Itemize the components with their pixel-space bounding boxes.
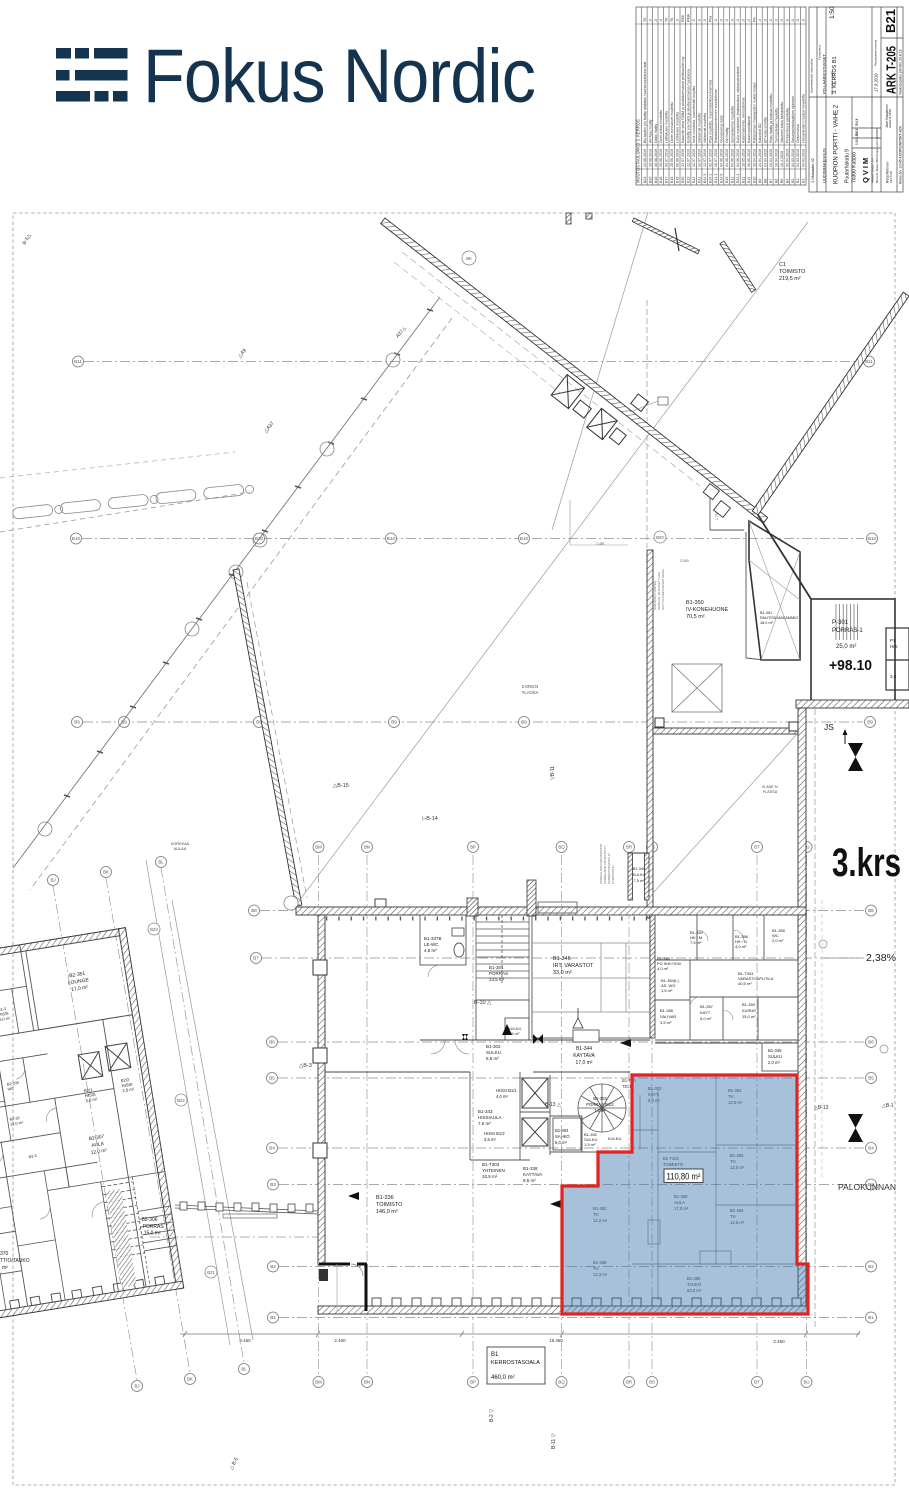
svg-text:3,0: 3,0 (890, 674, 897, 679)
svg-text:04.06.2019: 04.06.2019 (720, 149, 724, 167)
svg-text:KULKU: KULKU (633, 873, 646, 877)
svg-text:B8: B8 (763, 179, 767, 183)
svg-text:Rakstahtuulentervien suunitelm: Rakstahtuulentervien suunitelmas (714, 89, 718, 143)
svg-text:YHTEINEN: YHTEINEN (482, 1168, 505, 1173)
svg-text:B4: B4 (868, 1146, 874, 1151)
svg-text:22.07.2019: 22.07.2019 (687, 149, 691, 167)
svg-text:10.05.2019: 10.05.2019 (741, 149, 745, 167)
svg-text:BL: BL (158, 860, 164, 865)
svg-text:B14.2: B14.2 (709, 174, 713, 183)
svg-text:1.481: 1.481 (596, 542, 605, 546)
svg-text:Esitetty sos hallit ja alustav: Esitetty sos hallit ja alustavannassa mu… (687, 69, 691, 143)
svg-text:30.08.2019: 30.08.2019 (654, 149, 658, 167)
svg-text:UUDISRAKENNUS: UUDISRAKENNUS (822, 148, 827, 183)
svg-text:B18: B18 (659, 177, 663, 183)
svg-text:15,0 m²: 15,0 m² (742, 1014, 756, 1019)
svg-text:JI: JI (741, 19, 745, 22)
svg-text:B6: B6 (774, 179, 778, 183)
svg-text:7,5 m²: 7,5 m² (634, 879, 645, 883)
svg-text:B2: B2 (868, 1264, 874, 1269)
svg-text:30.05.2019: 30.05.2019 (747, 149, 751, 167)
svg-text:24.04.2019: 24.04.2019 (763, 149, 767, 167)
svg-text:70,5 m²: 70,5 m² (686, 614, 705, 620)
svg-text:24.04.2019: 24.04.2019 (758, 149, 762, 167)
svg-text:KULKU: KULKU (608, 1136, 621, 1141)
svg-text:10,5 m²: 10,5 m² (482, 1174, 498, 1179)
svg-text:B1: B1 (270, 1315, 276, 1320)
svg-text:JI: JI (796, 19, 800, 22)
svg-text:SULKU: SULKU (486, 1050, 501, 1055)
svg-text:B5: B5 (780, 179, 784, 183)
svg-text:B22: B22 (177, 1098, 185, 1103)
svg-text:JI: JI (725, 19, 729, 22)
svg-text:B3: B3 (791, 179, 795, 183)
svg-text:YLAOSA: YLAOSA (522, 690, 539, 695)
svg-text:B9: B9 (391, 720, 397, 725)
svg-text:BJ: BJ (50, 878, 55, 883)
svg-text:C1: C1 (779, 262, 786, 268)
svg-text:Piirustuksen sisalto: Piirustuksen sisalto (830, 70, 834, 94)
svg-text:7,0 m²: 7,0 m² (594, 1108, 606, 1113)
svg-text:8.460: 8.460 (239, 1338, 251, 1343)
svg-text:JI: JI (791, 19, 795, 22)
svg-text:Tiedostopolku piirrettu 23.8.1: Tiedostopolku piirrettu 23.8.19 (899, 49, 903, 95)
svg-text:2,0 m²: 2,0 m² (772, 938, 784, 943)
svg-text:B12: B12 (731, 177, 735, 183)
svg-text:12.07.2019: 12.07.2019 (698, 149, 702, 167)
svg-text:B16: B16 (670, 177, 674, 183)
svg-text:23.08.2019: 23.08.2019 (643, 149, 647, 167)
svg-text:Blu taiden ym lisatty alakatot: Blu taiden ym lisatty alakatot, huonemuu… (643, 62, 647, 143)
svg-text:6,0 m²: 6,0 m² (555, 1140, 567, 1145)
svg-text:FLASSA: FLASSA (763, 790, 778, 794)
svg-text:PORRAS B1/2: PORRAS B1/2 (586, 1102, 614, 1107)
svg-text:B11: B11 (741, 177, 745, 183)
svg-text:04.03.2019: 04.03.2019 (791, 149, 795, 167)
svg-text:B9: B9 (74, 720, 80, 725)
svg-text:B1-350: B1-350 (686, 600, 704, 606)
svg-text:B2: B2 (796, 179, 800, 183)
svg-text:B10: B10 (520, 536, 529, 541)
svg-text:JI: JI (698, 19, 702, 22)
svg-text:B9: B9 (521, 720, 527, 725)
svg-text:Lattiakuvio muutettu: Lattiakuvio muutettu (665, 111, 669, 143)
svg-text:▽B-11: ▽B-11 (550, 766, 556, 780)
svg-text:1,5 m²: 1,5 m² (661, 988, 673, 993)
svg-text:3.krs: 3.krs (832, 841, 901, 885)
svg-text:HISSI B1/2: HISSI B1/2 (484, 1131, 505, 1136)
svg-text:TK: TK (643, 17, 647, 22)
svg-text:KAYTTAJAKESTEISIIN SEINA: KAYTTAJAKESTEISIIN SEINA (661, 569, 665, 610)
svg-text:B1-346: B1-346 (553, 956, 571, 962)
svg-text:B7: B7 (769, 179, 773, 183)
svg-text:10.4.2019: 10.4.2019 (780, 151, 784, 167)
svg-text:B-10 △: B-10 △ (474, 1000, 492, 1006)
svg-text:B1-345: B1-345 (768, 1048, 782, 1053)
svg-text:2.400: 2.400 (334, 1338, 346, 1343)
svg-text:Savunpoistoluukkien sijainton: Savunpoistoluukkien sijainton (791, 96, 795, 143)
svg-text:RMJI: RMJI (855, 128, 859, 136)
svg-text:370: 370 (0, 1251, 9, 1257)
svg-text:B1: B1 (802, 179, 806, 183)
svg-text:B12: B12 (692, 177, 696, 183)
svg-text:04.03.2019: 04.03.2019 (802, 149, 806, 167)
svg-text:Valiseinat muutettu: Valiseinat muutettu (703, 113, 707, 143)
svg-text:HISSIAULA: HISSIAULA (478, 1115, 502, 1120)
svg-text:Pka: Pka (709, 16, 713, 22)
svg-text:TK: TK (670, 17, 674, 22)
svg-text:P1: P1 (890, 638, 896, 643)
svg-text:Nimio arv 10045 KUOPIONPORT-A2: Nimio arv 10045 KUOPIONPORT-A24 (899, 126, 903, 184)
svg-text:06.06.2019: 06.06.2019 (676, 149, 680, 167)
svg-text:17,0 m²: 17,0 m² (576, 1060, 593, 1066)
svg-text:B20: B20 (648, 177, 652, 183)
svg-text:B1-359: B1-359 (742, 1002, 756, 1007)
svg-text:BM: BM (315, 845, 322, 850)
svg-text:TOIMISTO: TOIMISTO (376, 1202, 403, 1208)
svg-text:2.000: 2.000 (680, 559, 689, 563)
svg-text:Ovien tunnukset muutettu: Ovien tunnukset muutettu (670, 102, 674, 143)
svg-text:B11: B11 (747, 177, 751, 183)
svg-text:JI: JI (747, 19, 751, 22)
svg-text:B1-302: B1-302 (486, 1044, 501, 1049)
svg-text:Pki: Pki (752, 17, 756, 22)
svg-text:B10: B10 (387, 536, 396, 541)
svg-text:BK: BK (187, 1377, 193, 1382)
svg-text:13,5 m²: 13,5 m² (489, 977, 505, 982)
svg-text:Ilmis muodolla, huonetekstit k: Ilmis muodolla, huonetekstit korjattu (692, 86, 696, 143)
svg-text:IV-KONEHUONE: IV-KONEHUONE (686, 607, 729, 613)
svg-text:Kuilu muutokset, lisatasauksia: Kuilu muutokset, lisatasauksia, rakkasva… (736, 67, 740, 143)
svg-text:3,5 m²: 3,5 m² (660, 1020, 672, 1025)
svg-text:BJ: BJ (134, 1384, 139, 1389)
svg-text:Puutarhakatu 9: Puutarhakatu 9 (845, 149, 851, 183)
svg-text:1 Muistutin 42: 1 Muistutin 42 (810, 157, 815, 183)
svg-text:LE-WC: LE-WC (424, 942, 439, 947)
svg-text:△B-13: △B-13 (814, 1105, 829, 1111)
svg-text:B13: B13 (725, 177, 729, 183)
svg-text:JI: JI (763, 19, 767, 22)
svg-text:Pilari lisatty ja koskua muute: Pilari lisatty ja koskua muutettu (769, 94, 773, 143)
svg-text:B9: B9 (867, 720, 873, 725)
svg-text:BQ: BQ (558, 845, 565, 850)
svg-text:BP: BP (470, 1380, 476, 1385)
svg-text:B20: B20 (656, 535, 664, 540)
svg-text:Pintamitoout paivitetty: Pintamitoout paivitetty (785, 108, 789, 143)
svg-text:Hissasteiden muutos hevytetta: Hissasteiden muutos hevytetta (802, 94, 806, 143)
svg-text:B-2 ▽: B-2 ▽ (489, 1409, 495, 1422)
svg-text:JS: JS (824, 722, 834, 732)
svg-text:B1-357: B1-357 (700, 1004, 714, 1009)
svg-text:VALIVAR: VALIVAR (660, 1014, 676, 1019)
svg-text:JI: JI (648, 19, 652, 22)
svg-text:2,0 m²: 2,0 m² (768, 1060, 780, 1065)
svg-text:B1: B1 (868, 1315, 874, 1320)
svg-text:PO-LAARKISTUKSET: PO-LAARKISTUKSET (822, 54, 827, 94)
svg-text:QVIM: QVIM (861, 156, 870, 183)
svg-text:02.07.2019: 02.07.2019 (709, 149, 713, 167)
svg-text:18,0 m²: 18,0 m² (760, 621, 774, 625)
svg-text:m²: m² (2, 1265, 8, 1271)
svg-text:B1-304: B1-304 (555, 1128, 569, 1133)
svg-text:B21: B21 (643, 177, 647, 183)
svg-text:+98.10: +98.10 (829, 658, 872, 674)
svg-text:B14.1: B14.1 (714, 174, 718, 183)
svg-text:Ovi lisatty: Ovi lisatty (725, 127, 729, 143)
svg-text:B-ASE N: B-ASE N (762, 785, 777, 789)
svg-text:KAYTAVA: KAYTAVA (523, 1172, 542, 1177)
svg-text:7,5 m²: 7,5 m² (690, 940, 702, 945)
svg-text:Tyonumero: Tyonumero (818, 45, 822, 60)
svg-text:Palokunnan maaraysten mukan li: Palokunnan maaraysten mukan lisays (752, 82, 756, 143)
svg-text:BK: BK (466, 256, 472, 261)
svg-text:Kulunvalvonta, ovimuutoksia: Kulunvalvonta, ovimuutoksia (741, 97, 745, 143)
svg-text:BN: BN (364, 1380, 370, 1385)
svg-text:Piirustuksen tunnus: Piirustuksen tunnus (874, 39, 878, 66)
svg-text:BL: BL (241, 1367, 247, 1372)
svg-text:B2-306: B2-306 (141, 1217, 157, 1223)
svg-text:RMJI: RMJI (855, 118, 859, 126)
svg-text:PORRAS: PORRAS (143, 1224, 165, 1230)
svg-text:KUIRAT: KUIRAT (742, 1008, 757, 1013)
svg-text:Suunnitteluala vastuualue: Suunnitteluala vastuualue (810, 58, 814, 93)
svg-text:JI: JI (714, 19, 718, 22)
svg-text:PYROISNSUU: PYROISNSUU (611, 866, 615, 885)
svg-text:HISSI B1/1: HISSI B1/1 (496, 1088, 517, 1093)
svg-text:BK: BK (103, 870, 109, 875)
svg-text:BU: BU (803, 1380, 809, 1385)
svg-text:044-7178: 044-7178 (889, 171, 893, 183)
svg-text:04.06.2019: 04.06.2019 (725, 149, 729, 167)
svg-text:MUUTOSTAULUKKO 3. KERROS: MUUTOSTAULUKKO 3. KERROS (636, 119, 641, 183)
svg-text:B11: B11 (698, 177, 702, 183)
svg-text:B1-343: B1-343 (478, 1109, 493, 1114)
svg-text:B21: B21 (883, 9, 898, 33)
svg-text:B11: B11 (74, 359, 82, 364)
svg-text:JI: JI (774, 19, 778, 22)
svg-text:Nakki lisatty: Nakki lisatty (654, 124, 658, 143)
svg-text:△B-3: △B-3 (299, 1063, 312, 1069)
svg-text:Fokus Nordic: Fokus Nordic (143, 34, 535, 119)
svg-text:146,0 m²: 146,0 m² (376, 1209, 398, 1215)
svg-text:4,0 m²: 4,0 m² (496, 1094, 508, 1099)
svg-text:Kulunvuuluttavat: Kulunvuuluttavat (747, 116, 751, 143)
svg-text:04.03.2019: 04.03.2019 (796, 149, 800, 167)
svg-text:AULAA: AULAA (174, 847, 187, 851)
svg-text:B7: B7 (253, 956, 259, 961)
svg-text:110,80 m²: 110,80 m² (667, 1172, 701, 1182)
svg-text:PORRAS: PORRAS (489, 971, 508, 976)
svg-text:B4: B4 (785, 179, 789, 183)
svg-text:TTIO/TAUKO: TTIO/TAUKO (0, 1258, 30, 1264)
svg-text:B6: B6 (269, 1040, 275, 1045)
svg-text:ARKKITEHDIT OY: ARKKITEHDIT OY (871, 158, 875, 183)
svg-text:7,5 m²: 7,5 m² (478, 1121, 491, 1126)
svg-text:12.07.2019: 12.07.2019 (703, 149, 707, 167)
svg-text:KAYTAVA: KAYTAVA (573, 1053, 595, 1059)
svg-text:PALOKUNNAN: PALOKUNNAN (838, 1182, 896, 1192)
svg-text:KUOPION PORTTI - VAIHE 2: KUOPION PORTTI - VAIHE 2 (834, 104, 840, 184)
svg-text:RMI: RMI (681, 15, 685, 22)
svg-text:23.04.2019: 23.04.2019 (769, 149, 773, 167)
svg-text:30.04.2019: 30.04.2019 (752, 149, 756, 167)
svg-text:28.06.2019: 28.06.2019 (670, 149, 674, 167)
svg-text:15,0 m²: 15,0 m² (144, 1231, 161, 1237)
svg-text:BT: BT (754, 845, 760, 850)
svg-text:B10: B10 (72, 536, 81, 541)
svg-text:B1-344: B1-344 (576, 1046, 592, 1052)
svg-text:Kalustiot SD: Kalustiot SD (758, 123, 762, 143)
svg-text:BT: BT (754, 1380, 760, 1385)
svg-text:4,0 m²: 4,0 m² (735, 944, 747, 949)
svg-text:Seinarakenne muutettu: Seinarakenne muutettu (731, 106, 735, 143)
svg-text:BQ: BQ (558, 1380, 565, 1385)
svg-text:RMA: RMA (687, 13, 691, 22)
svg-text:JI: JI (736, 19, 740, 22)
svg-text:B14.3: B14.3 (703, 174, 707, 183)
svg-text:Ovet siirtoa muutettu: Ovet siirtoa muutettu (659, 110, 663, 143)
svg-text:JI: JI (676, 19, 680, 22)
svg-text:B2: B2 (270, 1264, 276, 1269)
svg-text:PORRAS-1: PORRAS-1 (832, 628, 863, 634)
svg-text:1,5 m²: 1,5 m² (584, 1142, 596, 1147)
svg-text:Ovitunnksia: Ovitunnksia (796, 124, 800, 143)
svg-text:B15: B15 (654, 177, 658, 183)
svg-text:JI: JI (654, 19, 658, 22)
svg-text:JI: JI (758, 19, 762, 22)
svg-text:JI: JI (785, 19, 789, 22)
svg-text:ARK T-205: ARK T-205 (885, 46, 899, 94)
svg-text:28.07.2019: 28.07.2019 (714, 149, 718, 167)
svg-text:B15: B15 (676, 177, 680, 183)
svg-text:▷B-14: ▷B-14 (422, 816, 438, 822)
svg-text:6,0 m²: 6,0 m² (700, 1016, 712, 1021)
svg-text:BR: BR (626, 1380, 632, 1385)
svg-text:3,5 m²: 3,5 m² (484, 1137, 496, 1142)
svg-text:AV-/taso lisatty: AV-/taso lisatty (648, 119, 652, 143)
svg-text:B1-349: B1-349 (633, 867, 645, 871)
svg-text:17.3.2019: 17.3.2019 (874, 73, 879, 92)
svg-text:△B-1: △B-1 (882, 1103, 894, 1109)
svg-text:2,38%: 2,38% (866, 953, 896, 964)
svg-text:B13.1: B13.1 (736, 174, 740, 183)
svg-text:1:50: 1:50 (829, 6, 836, 19)
svg-text:B13: B13 (687, 177, 691, 183)
svg-text:JI: JI (780, 19, 784, 22)
svg-text:BP: BP (470, 845, 476, 850)
svg-text:Pipa muutettu, muunnetuilkoon/: Pipa muutettu, muunnetuilkoon/varmika (709, 80, 713, 143)
svg-text:20.08.2019: 20.08.2019 (648, 149, 652, 167)
svg-text:BN: BN (364, 845, 370, 850)
svg-text:BS: BS (649, 1380, 655, 1385)
svg-text:BR: BR (626, 845, 632, 850)
svg-text:B11: B11 (865, 359, 873, 364)
svg-text:JI: JI (692, 19, 696, 22)
svg-text:P-301: P-301 (832, 620, 849, 626)
svg-text:B1-351: B1-351 (760, 611, 772, 615)
svg-text:B8: B8 (251, 908, 257, 913)
svg-text:JI: JI (720, 19, 724, 22)
svg-text:BM: BM (315, 1380, 322, 1385)
svg-text:B1-301: B1-301 (489, 965, 504, 970)
svg-text:SAHKO: SAHKO (555, 1134, 570, 1139)
svg-text:B-11 ▽: B-11 ▽ (551, 1433, 557, 1449)
svg-text:2.KRS:N: 2.KRS:N (522, 684, 538, 689)
svg-text:KERROSTASOALA: KERROSTASOALA (491, 1360, 540, 1366)
svg-text:TK: TK (665, 17, 669, 22)
svg-text:25,0 m²: 25,0 m² (836, 644, 856, 650)
svg-text:Tunnustelale muutettu: Tunnustelale muutettu (774, 108, 778, 143)
svg-text:RAUTISILMAKAMMIO: RAUTISILMAKAMMIO (760, 616, 798, 620)
svg-text:JI: JI (731, 19, 735, 22)
svg-text:EP-kuilu siirretty: EP-kuilu siirretty (763, 117, 767, 143)
svg-text:HIS: HIS (890, 644, 898, 649)
svg-text:△B-15: △B-15 (333, 783, 349, 789)
svg-text:B1-358: B1-358 (660, 1008, 674, 1013)
svg-text:B5: B5 (269, 1076, 275, 1081)
svg-text:B1-337B: B1-337B (424, 936, 442, 941)
svg-text:16.04.2019: 16.04.2019 (774, 149, 778, 167)
svg-text:B1-336: B1-336 (376, 1195, 394, 1201)
svg-text:SULKU: SULKU (768, 1054, 782, 1059)
svg-text:22.07.2019: 22.07.2019 (681, 149, 685, 167)
svg-text:JI: JI (769, 19, 773, 22)
svg-text:2.450: 2.450 (773, 1339, 785, 1344)
svg-text:70300 Kuopio: 70300 Kuopio (852, 152, 858, 183)
svg-text:TOIMISTO: TOIMISTO (779, 269, 806, 275)
svg-text:460,0 m²: 460,0 m² (491, 1375, 515, 1381)
svg-text:219,5 m²: 219,5 m² (779, 276, 801, 282)
svg-text:B21: B21 (207, 1270, 215, 1275)
svg-text:B6: B6 (868, 1040, 874, 1045)
svg-text:B1-T303: B1-T303 (482, 1162, 500, 1167)
svg-text:B1-303: B1-303 (593, 1096, 607, 1101)
svg-text:IRT. VARASTOT: IRT. VARASTOT (553, 963, 594, 969)
svg-text:03.07.2019: 03.07.2019 (665, 149, 669, 167)
svg-text:B3: B3 (270, 1182, 276, 1187)
svg-text:JI: JI (703, 19, 707, 22)
svg-text:19.360: 19.360 (549, 1338, 563, 1343)
svg-text:30.08.2019: 30.08.2019 (659, 149, 663, 167)
svg-text:Valiseinat muutettu: Valiseinat muutettu (698, 113, 702, 143)
svg-text:B5: B5 (868, 1076, 874, 1081)
svg-text:JI: JI (659, 19, 663, 22)
svg-text:B8: B8 (868, 908, 874, 913)
svg-text:4,0 m²: 4,0 m² (657, 966, 669, 971)
svg-text:33,0 m²: 33,0 m² (553, 970, 572, 976)
svg-text:B17: B17 (665, 177, 669, 183)
svg-text:Lehtikuvio muutettu: Lehtikuvio muutettu (676, 112, 680, 143)
svg-text:B14.0: B14.0 (720, 174, 724, 183)
svg-text:KORKEAA: KORKEAA (171, 842, 190, 846)
svg-text:B30: B30 (681, 177, 685, 183)
svg-text:03.04.2019: 03.04.2019 (785, 149, 789, 167)
svg-text:Minna K. Alava 7000 Kuopio p.0: Minna K. Alava 7000 Kuopio p.017-2614500 (875, 128, 879, 183)
svg-text:KAYT.: KAYT. (700, 1010, 711, 1015)
svg-text:B1-338: B1-338 (523, 1166, 538, 1171)
svg-text:B1: B1 (491, 1352, 499, 1358)
svg-text:B-13 △: B-13 △ (545, 1102, 561, 1108)
svg-text:B23: B23 (150, 927, 158, 932)
svg-text:5,5 m²: 5,5 m² (486, 1056, 499, 1061)
svg-text:40,5 m²: 40,5 m² (738, 981, 752, 986)
svg-text:4,5 m²: 4,5 m² (424, 948, 437, 953)
svg-text:arkkitehti SAFA: arkkitehti SAFA (888, 109, 892, 128)
svg-text:B10: B10 (868, 536, 877, 541)
svg-text:04.06.2019: 04.06.2019 (736, 149, 740, 167)
svg-text:Vakunen kisko tarkastettu: Vakunen kisko tarkastettu (780, 102, 784, 143)
svg-text:9,5 m²: 9,5 m² (523, 1178, 536, 1183)
